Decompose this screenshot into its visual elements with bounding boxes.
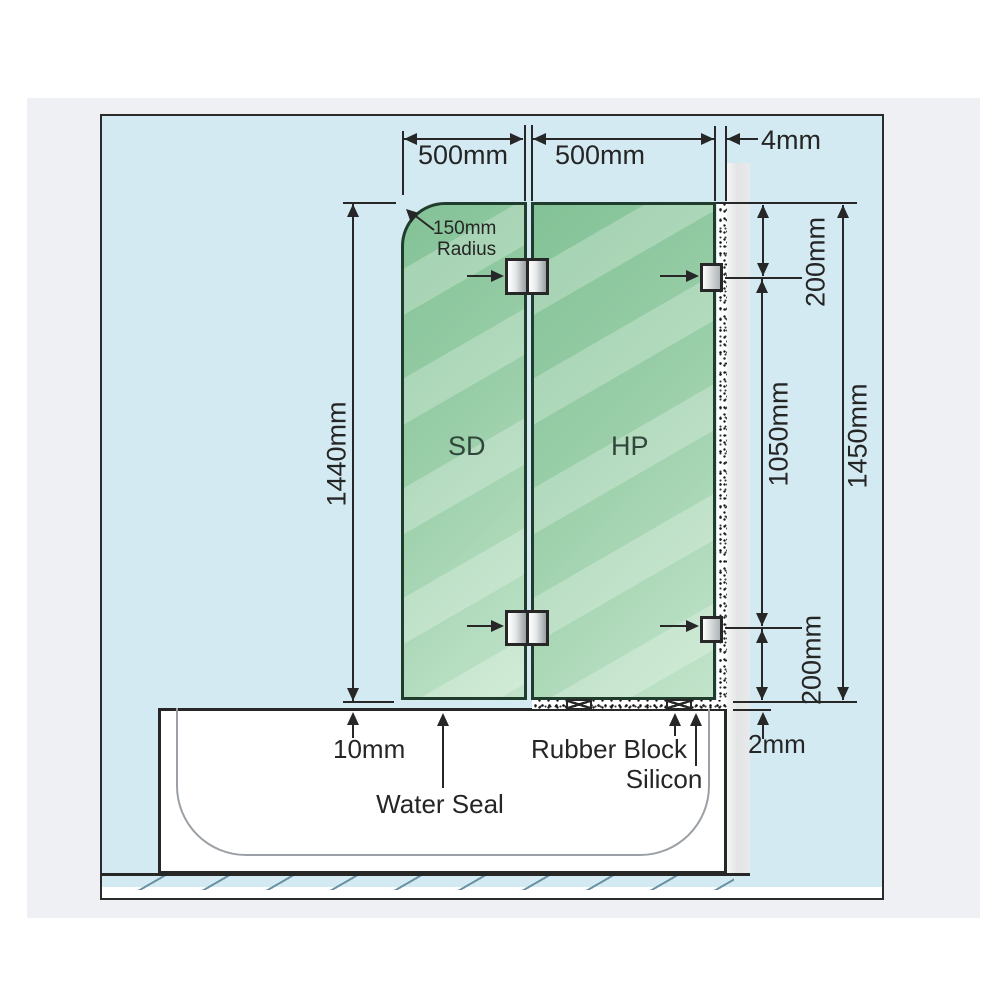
panel-sd-label: SD bbox=[448, 431, 486, 462]
dim-bracket-spacing-label: 1050mm bbox=[764, 381, 795, 486]
arrowhead bbox=[669, 713, 681, 726]
radius-note-line2: Radius bbox=[437, 240, 496, 260]
arrowhead bbox=[437, 713, 449, 726]
dim-line-wall-gap bbox=[727, 138, 758, 140]
arrowhead bbox=[756, 280, 768, 293]
dim-panel2-height-label: 1450mm bbox=[843, 383, 874, 488]
hinge-top bbox=[505, 258, 549, 295]
arrowhead bbox=[757, 712, 769, 725]
arrowhead bbox=[510, 133, 523, 145]
hinge-bottom-arrow bbox=[467, 625, 492, 627]
radius-note-line1: 150mm bbox=[433, 219, 496, 239]
ref-line-bracket-top bbox=[725, 277, 802, 279]
floor-line bbox=[102, 873, 750, 876]
dim-bottom-bracket-label: 200mm bbox=[797, 615, 828, 705]
dim-wall-gap-label: 4mm bbox=[761, 125, 821, 156]
wall-bracket-bottom-arrow bbox=[660, 625, 687, 627]
silicon-label: Silicon bbox=[626, 764, 703, 795]
arrowhead bbox=[837, 687, 849, 700]
ref-line-tub-rim bbox=[733, 709, 771, 711]
arrowhead bbox=[757, 263, 769, 276]
arrowhead bbox=[690, 713, 702, 726]
ext-line bbox=[714, 126, 716, 201]
arrowhead bbox=[347, 688, 359, 701]
hinge-bottom bbox=[505, 610, 549, 646]
dim-top-bracket-label: 200mm bbox=[801, 217, 832, 307]
ext-line bbox=[343, 701, 394, 703]
dim-tub-gap-label: 10mm bbox=[333, 734, 405, 765]
dim-panel1-height-label: 1440mm bbox=[322, 401, 353, 506]
ref-line-glass-top bbox=[716, 202, 857, 204]
arrowhead bbox=[404, 133, 417, 145]
arrowhead bbox=[533, 133, 546, 145]
floor-hatch bbox=[102, 876, 734, 890]
water-seal-label: Water Seal bbox=[376, 789, 504, 820]
arrowhead bbox=[347, 204, 359, 217]
arrowhead bbox=[837, 205, 849, 218]
rubber-block-left bbox=[566, 699, 592, 710]
dim-silicon-bed-label: 2mm bbox=[748, 729, 806, 760]
arrowhead bbox=[756, 687, 768, 700]
water-seal-arrow bbox=[442, 726, 444, 788]
wall-bracket-top bbox=[700, 263, 723, 292]
arrowhead bbox=[756, 613, 768, 626]
hinge-top-arrow bbox=[467, 275, 492, 277]
ref-line-bracket-bottom bbox=[725, 627, 802, 629]
arrowhead bbox=[757, 205, 769, 218]
arrowhead bbox=[347, 712, 359, 725]
panel-hp-label: HP bbox=[611, 431, 649, 462]
silicon-arrow bbox=[695, 726, 697, 766]
silicon-bed-bottom bbox=[532, 700, 727, 709]
ref-line-glass-bottom bbox=[733, 701, 857, 703]
dim-panel2-width-label: 500mm bbox=[555, 140, 645, 171]
diagram-stage: 500mm 500mm 4mm 150mm Radius SD HP 1440m… bbox=[0, 0, 1000, 1000]
arrowhead bbox=[756, 630, 768, 643]
rubber-block-label: Rubber Block bbox=[531, 734, 687, 765]
hinge-bottom-arrowhead bbox=[491, 620, 504, 632]
hinge-top-arrowhead bbox=[491, 270, 504, 282]
rubber-block-right bbox=[666, 699, 692, 710]
ext-line bbox=[524, 125, 526, 201]
dim-panel1-width-label: 500mm bbox=[418, 140, 508, 171]
wall-bracket-bottom-arrowhead bbox=[686, 620, 699, 632]
wall bbox=[727, 163, 750, 874]
arrowhead bbox=[701, 133, 714, 145]
wall-bracket-bottom bbox=[700, 616, 723, 643]
wall-bracket-top-arrowhead bbox=[686, 270, 699, 282]
wall-bracket-top-arrow bbox=[660, 275, 687, 277]
